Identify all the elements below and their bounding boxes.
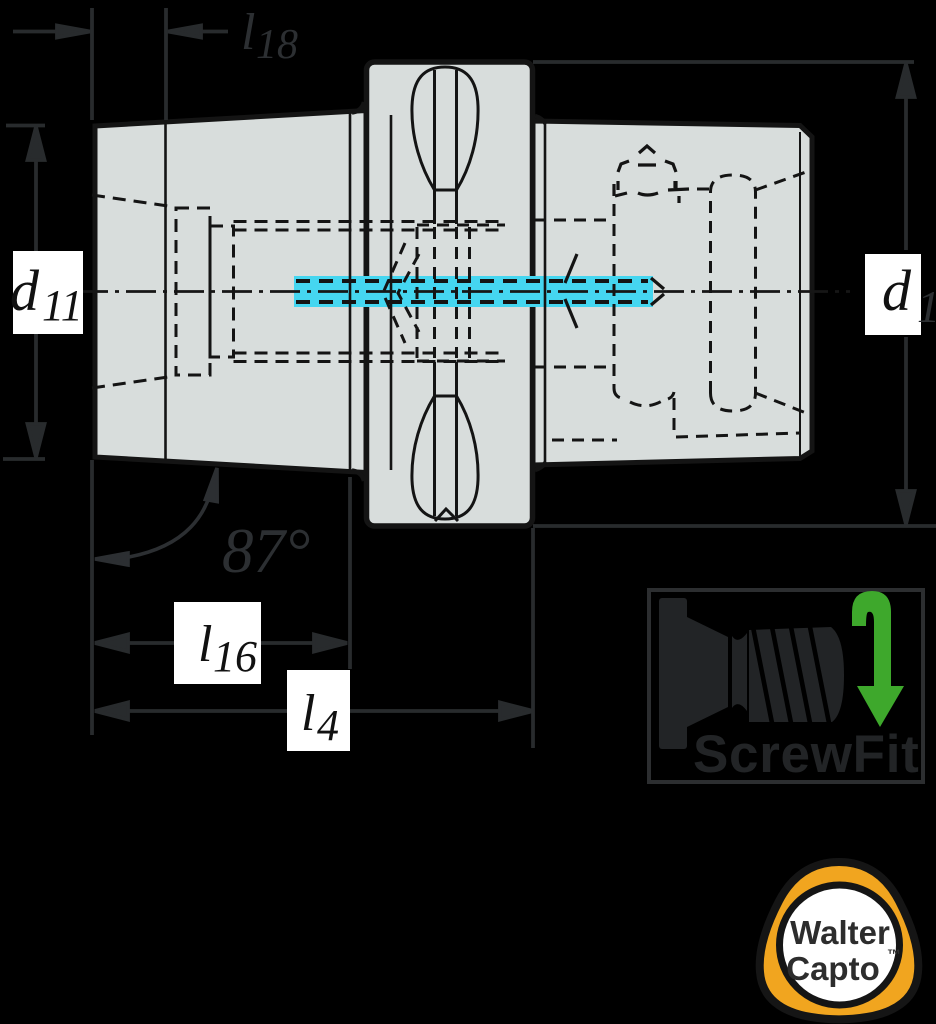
svg-text:Walter: Walter: [790, 914, 890, 951]
svg-text:11: 11: [42, 281, 83, 330]
svg-text:l: l: [198, 616, 212, 673]
svg-text:18: 18: [256, 22, 298, 68]
svg-text:™: ™: [887, 946, 901, 962]
svg-text:16: 16: [213, 632, 257, 681]
svg-text:l: l: [301, 685, 315, 742]
svg-text:d: d: [10, 258, 40, 323]
svg-text:ScrewFit: ScrewFit: [693, 725, 920, 784]
svg-text:87°: 87°: [222, 516, 310, 586]
svg-text:Capto: Capto: [786, 950, 880, 987]
svg-text:l: l: [241, 4, 255, 61]
svg-text:d: d: [882, 258, 912, 323]
svg-text:1: 1: [917, 281, 936, 332]
svg-text:4: 4: [317, 701, 339, 750]
